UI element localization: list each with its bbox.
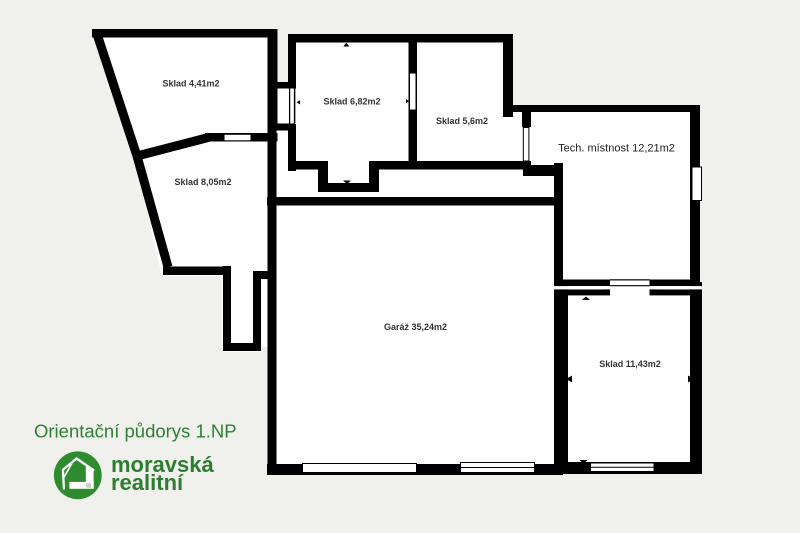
- svg-text:Sklad 8,05m2: Sklad 8,05m2: [174, 177, 231, 187]
- svg-text:®: ®: [86, 482, 91, 490]
- svg-text:Sklad 6,82m2: Sklad 6,82m2: [323, 97, 380, 107]
- svg-text:Tech. místnost 12,21m2: Tech. místnost 12,21m2: [558, 143, 675, 155]
- svg-text:Orientační půdorys 1.NP: Orientační půdorys 1.NP: [34, 421, 237, 442]
- svg-text:Sklad 4,41m2: Sklad 4,41m2: [162, 79, 219, 89]
- svg-text:Garáž 35,24m2: Garáž 35,24m2: [384, 322, 447, 332]
- svg-text:Sklad 11,43m2: Sklad 11,43m2: [599, 359, 661, 369]
- svg-text:Sklad 5,6m2: Sklad 5,6m2: [436, 116, 488, 126]
- svg-text:realitní: realitní: [111, 470, 184, 495]
